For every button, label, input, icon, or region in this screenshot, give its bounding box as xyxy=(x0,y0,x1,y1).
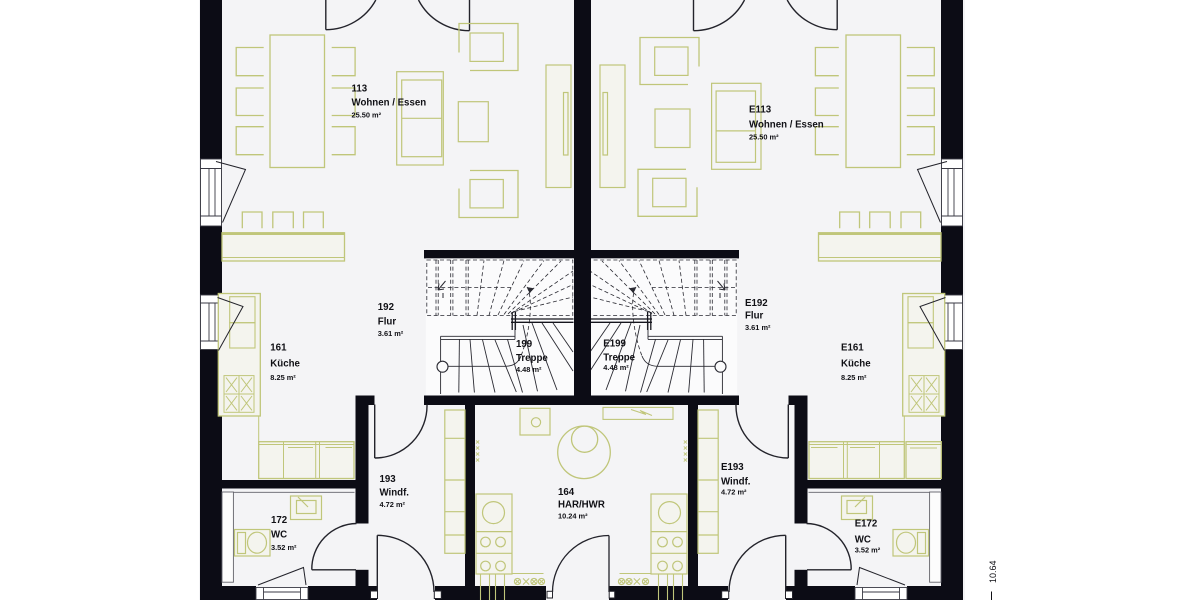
svg-text:E161: E161 xyxy=(841,342,864,353)
svg-text:8.25 m²: 8.25 m² xyxy=(270,373,296,382)
svg-text:172: 172 xyxy=(271,515,287,526)
svg-text:E199: E199 xyxy=(603,339,626,350)
svg-text:193: 193 xyxy=(380,474,397,485)
svg-text:Flur: Flur xyxy=(378,317,397,328)
svg-text:3.52 m²: 3.52 m² xyxy=(855,546,881,555)
svg-text:Windf.: Windf. xyxy=(721,477,751,488)
svg-text:164: 164 xyxy=(558,487,575,498)
svg-text:WC: WC xyxy=(271,530,287,541)
svg-text:Wohnen / Essen: Wohnen / Essen xyxy=(749,120,824,131)
svg-text:Küche: Küche xyxy=(270,358,300,369)
svg-text:Küche: Küche xyxy=(841,358,871,369)
svg-text:4.48 m²: 4.48 m² xyxy=(516,365,542,374)
svg-text:Wohnen / Essen: Wohnen / Essen xyxy=(352,98,427,109)
svg-text:4.72 m²: 4.72 m² xyxy=(380,500,406,509)
svg-text:161: 161 xyxy=(270,342,287,353)
svg-text:4.72 m²: 4.72 m² xyxy=(721,488,747,497)
svg-text:192: 192 xyxy=(378,302,394,313)
svg-text:4.48 m²: 4.48 m² xyxy=(603,363,629,372)
svg-text:25.50 m²: 25.50 m² xyxy=(352,111,382,120)
svg-text:Treppe: Treppe xyxy=(516,353,548,364)
svg-text:HAR/HWR: HAR/HWR xyxy=(558,500,605,511)
svg-text:10.24 m²: 10.24 m² xyxy=(558,512,588,521)
svg-text:3.61 m²: 3.61 m² xyxy=(745,323,771,332)
svg-text:10.64: 10.64 xyxy=(988,560,998,583)
svg-text:Flur: Flur xyxy=(745,310,764,321)
svg-text:E113: E113 xyxy=(749,105,772,116)
svg-text:WC: WC xyxy=(855,535,871,546)
svg-text:E193: E193 xyxy=(721,462,744,473)
svg-text:Windf.: Windf. xyxy=(380,488,410,499)
svg-text:113: 113 xyxy=(352,83,368,94)
svg-text:8.25 m²: 8.25 m² xyxy=(841,373,867,382)
svg-text:199: 199 xyxy=(516,339,533,350)
svg-text:E172: E172 xyxy=(855,519,878,530)
svg-text:E192: E192 xyxy=(745,298,768,309)
svg-text:3.61 m²: 3.61 m² xyxy=(378,329,404,338)
svg-text:25.50 m²: 25.50 m² xyxy=(749,132,779,141)
svg-text:3.52 m²: 3.52 m² xyxy=(271,543,297,552)
